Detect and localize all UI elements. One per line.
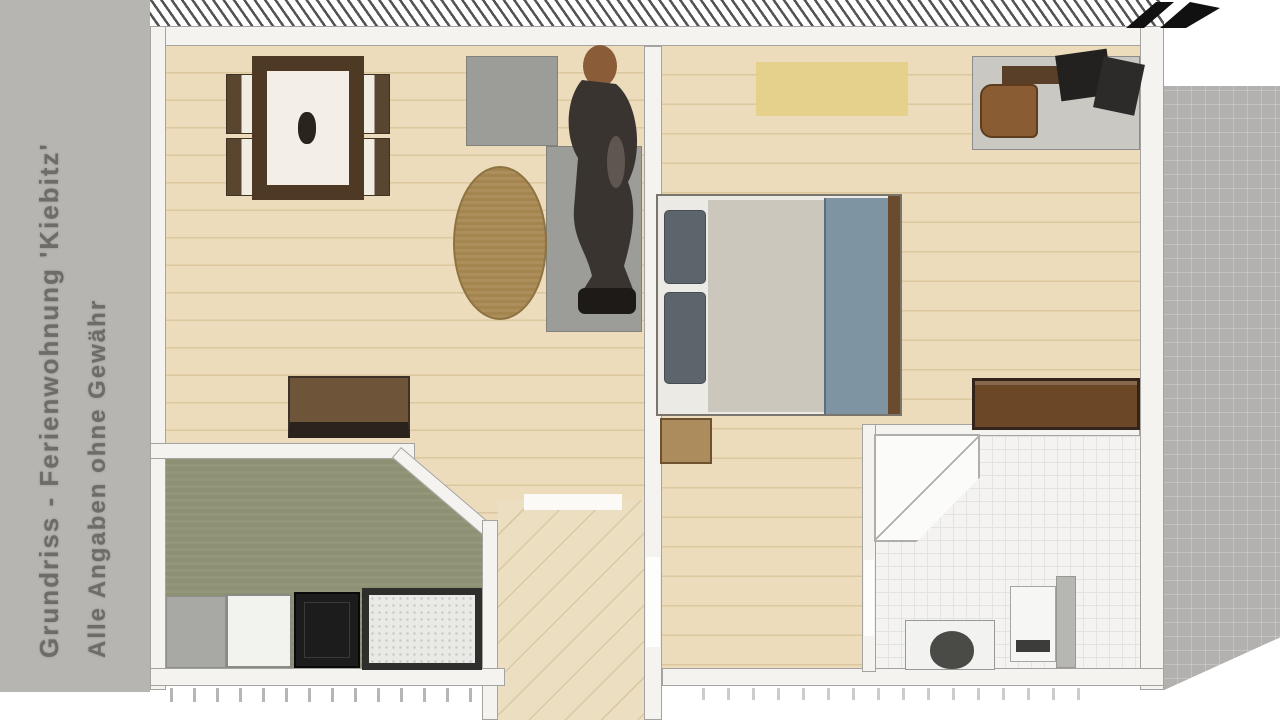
refrigerator xyxy=(226,594,292,668)
dresser xyxy=(972,378,1140,430)
nightstand xyxy=(660,418,712,464)
corner-sofa-top xyxy=(466,56,558,146)
hallway-floor xyxy=(498,500,644,720)
wall-living-kitchen xyxy=(150,443,415,459)
double-bed xyxy=(656,194,902,416)
bedroom-rug xyxy=(756,62,908,116)
oval-rug xyxy=(453,166,547,320)
site-background xyxy=(1164,86,1280,692)
caption-panel: Grundriss - Ferienwohnung 'Kiebitz' Alle… xyxy=(0,0,150,692)
kitchen-counter xyxy=(166,596,226,668)
table-centerpiece xyxy=(298,112,316,144)
caption-line-1: Grundriss - Ferienwohnung 'Kiebitz' xyxy=(34,142,65,658)
bed-pillow xyxy=(664,292,706,384)
exterior-wall-hatch-top xyxy=(150,0,1164,26)
floor-plan-stage: Grundriss - Ferienwohnung 'Kiebitz' Alle… xyxy=(0,0,1280,720)
exterior-wall-hatch-bottom-left xyxy=(150,688,490,702)
wall-bottom-left xyxy=(150,668,505,686)
toilet-bowl xyxy=(930,631,974,669)
toilet xyxy=(905,620,995,670)
desk-chair xyxy=(980,84,1038,138)
door-bathroom xyxy=(864,560,874,636)
bed-blanket xyxy=(824,198,888,414)
kitchen-sink-cabinet xyxy=(362,588,482,670)
stove xyxy=(294,592,360,668)
bed-mattress xyxy=(708,200,824,412)
person-cutout xyxy=(552,40,652,318)
dining-chair xyxy=(362,138,390,196)
door-living-hallway xyxy=(524,494,622,510)
dining-chair xyxy=(362,74,390,134)
north-arrow-icon xyxy=(1124,0,1220,30)
door-bedroom xyxy=(646,557,660,647)
wall-bottom-right xyxy=(662,668,1164,686)
dining-chair xyxy=(226,138,254,196)
wall-right xyxy=(1140,26,1164,690)
sink-faucet xyxy=(1016,640,1050,652)
caption-line-2: Alle Angaben ohne Gewähr xyxy=(84,299,112,658)
sideboard xyxy=(288,376,410,438)
exterior-wall-hatch-bottom-right xyxy=(680,688,1080,700)
bathroom-vanity xyxy=(1056,576,1076,668)
wall-left xyxy=(150,26,166,690)
wall-top xyxy=(150,26,1164,46)
stove-top xyxy=(304,602,350,658)
dining-chair xyxy=(226,74,254,134)
bed-pillow xyxy=(664,210,706,284)
bed-footboard xyxy=(888,196,900,414)
